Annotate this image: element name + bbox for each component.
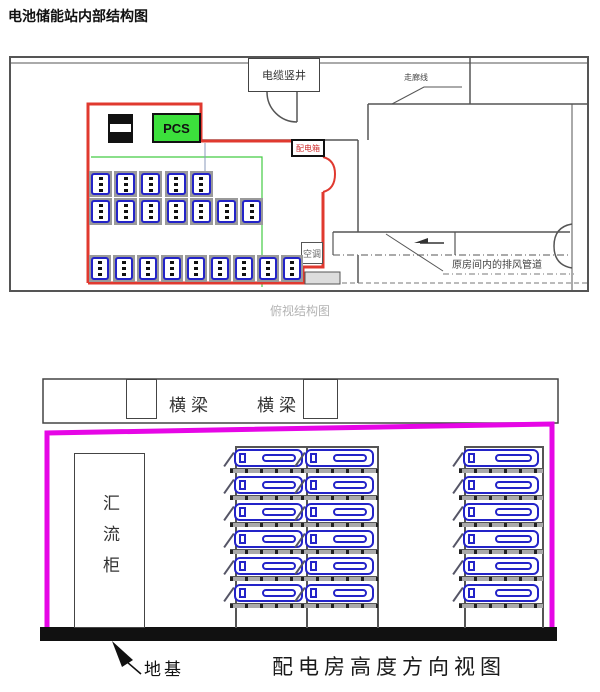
bus-cabinet: 汇流柜	[74, 453, 145, 628]
rack-shelf	[466, 448, 542, 475]
shelf-beam	[230, 468, 307, 473]
battery-rack	[113, 255, 135, 282]
module-connector-icon	[239, 588, 246, 598]
battery-rack	[257, 255, 279, 282]
battery-rack-body	[242, 200, 261, 223]
corridor-label: 走廊线	[404, 72, 428, 83]
module-cell-icon	[495, 562, 532, 570]
module-cell-icon	[262, 508, 296, 516]
right-double-door	[554, 224, 572, 268]
rack-bay	[306, 446, 379, 628]
battery-rack	[89, 255, 111, 282]
battery-terminals-icon	[225, 204, 229, 219]
beam-block-2	[303, 379, 338, 419]
battery-rack-body	[116, 173, 135, 195]
battery-rack	[114, 198, 137, 225]
shelf-beam	[301, 603, 378, 608]
battery-terminals-icon	[266, 261, 270, 276]
shelf-beam	[459, 495, 543, 500]
module-cell-icon	[262, 454, 296, 462]
module-connector-icon	[310, 561, 317, 571]
battery-rack	[139, 171, 162, 197]
battery-rack	[114, 171, 137, 197]
battery-rack	[165, 171, 188, 197]
shelf-beam	[230, 603, 307, 608]
battery-rack-body	[115, 257, 133, 280]
module-connector-icon	[468, 534, 475, 544]
rack-shelf	[466, 583, 542, 610]
module-connector-icon	[468, 480, 475, 490]
module-cell-icon	[333, 508, 367, 516]
battery-module	[305, 557, 374, 575]
module-cell-icon	[262, 589, 296, 597]
battery-rack	[240, 198, 263, 225]
battery-terminals-icon	[98, 261, 102, 276]
module-cell-icon	[262, 481, 296, 489]
battery-module	[305, 476, 374, 494]
module-cell-icon	[333, 562, 367, 570]
battery-rack-body	[141, 173, 160, 195]
duct-airflow-arrow	[414, 238, 428, 243]
battery-rack	[215, 198, 238, 225]
battery-rack-body	[141, 200, 160, 223]
battery-rack-body	[91, 173, 110, 195]
beam-label-2: 横梁	[257, 391, 301, 416]
battery-rack	[190, 171, 213, 197]
module-cell-icon	[333, 481, 367, 489]
battery-rack-body	[192, 200, 211, 223]
battery-module	[234, 584, 303, 602]
battery-rack	[233, 255, 255, 282]
module-connector-icon	[239, 480, 246, 490]
rack-group	[464, 446, 544, 628]
battery-module	[463, 557, 539, 575]
battery-module	[463, 503, 539, 521]
shelf-beam	[230, 549, 307, 554]
battery-rack-body	[167, 200, 186, 223]
battery-terminals-icon	[149, 204, 153, 219]
battery-terminals-icon	[99, 177, 103, 192]
rack-shelf	[308, 583, 377, 610]
battery-terminals-icon	[199, 177, 203, 192]
battery-rack-body	[167, 173, 186, 195]
battery-rack	[185, 255, 207, 282]
shelf-beam	[230, 522, 307, 527]
shelf-beam	[230, 495, 307, 500]
battery-rack-body	[139, 257, 157, 280]
air-conditioner-box: 空调	[301, 242, 323, 264]
module-cell-icon	[495, 535, 532, 543]
battery-rack-body	[91, 257, 109, 280]
shelf-beam	[459, 603, 543, 608]
rack-shelf	[308, 502, 377, 529]
battery-rack-body	[235, 257, 253, 280]
shelf-beam	[301, 549, 378, 554]
beam-label-1: 横梁	[169, 391, 213, 416]
module-cell-icon	[333, 454, 367, 462]
module-connector-icon	[468, 507, 475, 517]
corridor-leader-line	[392, 87, 462, 104]
rack-shelf	[308, 529, 377, 556]
distribution-box: 配电箱	[291, 139, 325, 157]
rack-shelf	[466, 529, 542, 556]
rack-shelf	[308, 448, 377, 475]
module-cell-icon	[495, 481, 532, 489]
cable-shaft-label: 电缆竖井	[262, 67, 306, 83]
module-connector-icon	[239, 453, 246, 463]
shelf-beam	[459, 522, 543, 527]
rack-bay	[235, 446, 308, 628]
shelf-beam	[301, 576, 378, 581]
exhaust-duct-label: 原房间内的排风管道	[452, 256, 542, 271]
module-cell-icon	[495, 508, 532, 516]
rack-legs	[308, 610, 377, 628]
module-cell-icon	[495, 454, 532, 462]
battery-terminals-icon	[99, 204, 103, 219]
rack-shelf	[237, 502, 306, 529]
battery-rack-body	[259, 257, 277, 280]
battery-rack	[161, 255, 183, 282]
battery-terminals-icon	[174, 177, 178, 192]
module-connector-icon	[239, 561, 246, 571]
module-cell-icon	[333, 589, 367, 597]
battery-module	[463, 476, 539, 494]
module-connector-icon	[468, 453, 475, 463]
battery-terminals-icon	[290, 261, 294, 276]
battery-rack	[89, 171, 112, 197]
battery-terminals-icon	[124, 177, 128, 192]
foundation-arrow	[112, 641, 141, 674]
module-connector-icon	[468, 588, 475, 598]
module-connector-icon	[310, 507, 317, 517]
battery-rack	[89, 198, 112, 225]
battery-rack	[139, 198, 162, 225]
battery-module	[463, 584, 539, 602]
battery-terminals-icon	[122, 261, 126, 276]
module-connector-icon	[468, 561, 475, 571]
top-view-caption: 俯视结构图	[240, 302, 360, 319]
battery-module	[305, 449, 374, 467]
battery-rack	[137, 255, 159, 282]
battery-module	[234, 530, 303, 548]
battery-rack	[190, 198, 213, 225]
module-cell-icon	[495, 589, 532, 597]
rack-bay	[464, 446, 544, 628]
rack-shelf	[466, 556, 542, 583]
pcs-label: PCS	[163, 121, 190, 136]
battery-module	[305, 530, 374, 548]
battery-module	[463, 449, 539, 467]
rack-group	[235, 446, 381, 628]
shelf-beam	[230, 576, 307, 581]
battery-terminals-icon	[170, 261, 174, 276]
side-view-caption: 配电房高度方向视图	[272, 651, 506, 681]
battery-rack-body	[283, 257, 301, 280]
battery-rack-body	[116, 200, 135, 223]
module-connector-icon	[239, 507, 246, 517]
battery-terminals-icon	[218, 261, 222, 276]
distribution-box-label: 配电箱	[296, 143, 320, 154]
battery-terminals-icon	[149, 177, 153, 192]
bus-cabinet-label: 汇流柜	[97, 494, 122, 587]
battery-terminals-icon	[250, 204, 254, 219]
shelf-beam	[301, 468, 378, 473]
battery-rack-body	[217, 200, 236, 223]
shelf-beam	[459, 576, 543, 581]
module-connector-icon	[310, 480, 317, 490]
rack-shelf	[308, 556, 377, 583]
rack-shelf	[237, 556, 306, 583]
battery-terminals-icon	[174, 204, 178, 219]
battery-rack-body	[187, 257, 205, 280]
foundation-label: 地基	[144, 655, 184, 680]
battery-rack-body	[192, 173, 211, 195]
battery-rack	[165, 198, 188, 225]
battery-rack	[281, 255, 303, 282]
foundation-bar	[40, 627, 557, 641]
module-connector-icon	[310, 588, 317, 598]
battery-rack-body	[91, 200, 110, 223]
rack-shelf	[237, 475, 306, 502]
battery-rack-body	[211, 257, 229, 280]
rack-shelf	[237, 448, 306, 475]
shelf-beam	[459, 549, 543, 554]
module-connector-icon	[239, 534, 246, 544]
module-cell-icon	[333, 535, 367, 543]
air-conditioner-label: 空调	[303, 247, 321, 260]
battery-terminals-icon	[199, 204, 203, 219]
battery-terminals-icon	[194, 261, 198, 276]
rack-legs	[237, 610, 306, 628]
battery-module	[463, 530, 539, 548]
battery-rack-body	[163, 257, 181, 280]
module-cell-icon	[262, 562, 296, 570]
rack-shelf	[466, 475, 542, 502]
cable-shaft-box: 电缆竖井	[248, 58, 320, 92]
beam-block-1	[126, 379, 157, 419]
module-cell-icon	[262, 535, 296, 543]
shelf-beam	[301, 495, 378, 500]
rack-shelf	[466, 502, 542, 529]
shelf-beam	[301, 522, 378, 527]
article-page: 电池储能站内部结构图 电缆竖井 PCS 配电箱 空调 走廊线 原房间内的排风管道…	[0, 0, 600, 692]
cable-shaft-door	[267, 92, 297, 122]
battery-module	[234, 503, 303, 521]
battery-terminals-icon	[242, 261, 246, 276]
pcs-box: PCS	[152, 113, 201, 143]
exhaust-duct	[305, 232, 588, 284]
battery-module	[234, 557, 303, 575]
page-title: 电池储能站内部结构图	[8, 6, 148, 26]
shelf-beam	[459, 468, 543, 473]
rack-shelf	[308, 475, 377, 502]
battery-module	[234, 449, 303, 467]
battery-module	[305, 503, 374, 521]
control-cabinet	[108, 114, 133, 143]
rack-shelf	[237, 583, 306, 610]
battery-terminals-icon	[124, 204, 128, 219]
battery-module	[305, 584, 374, 602]
battery-terminals-icon	[146, 261, 150, 276]
cabinet-label-band	[110, 124, 131, 132]
rack-legs	[466, 610, 542, 628]
module-connector-icon	[310, 534, 317, 544]
rack-shelf	[237, 529, 306, 556]
module-connector-icon	[310, 453, 317, 463]
battery-rack	[209, 255, 231, 282]
battery-module	[234, 476, 303, 494]
